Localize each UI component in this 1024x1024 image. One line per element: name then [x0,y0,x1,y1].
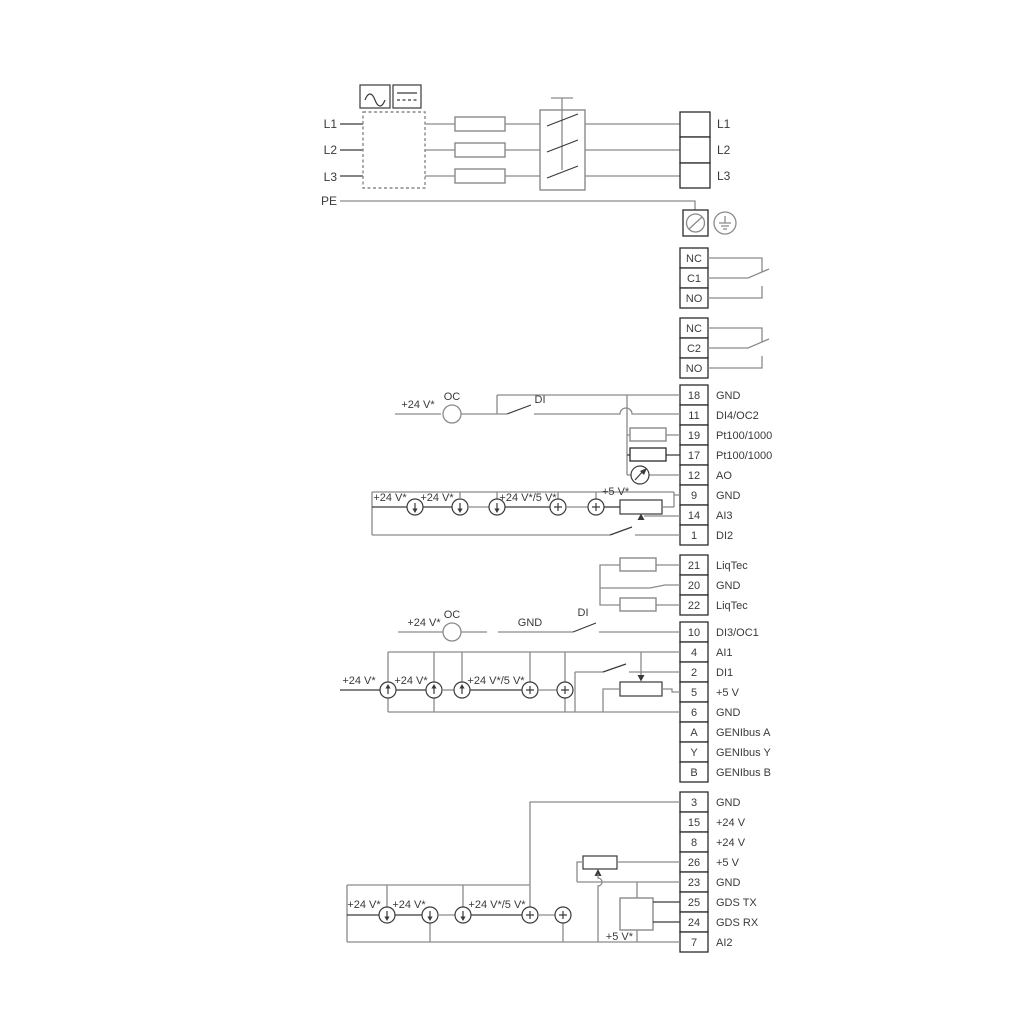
io-group2-wiring: +24 V* OC GND DI +24 V* +24 V* +24 V*/5 … [340,607,680,712]
pe-terminal-icon [683,210,708,236]
t18-num: 18 [688,390,700,402]
t26-num: 26 [688,857,700,869]
t8-num: 8 [691,837,697,849]
g2-plus24-b: +24 V* [394,675,428,687]
io-group1-terminals: 18GND 11DI4/OC2 19Pt100/1000 17Pt100/100… [680,385,772,545]
t8-label: +24 V [716,837,746,849]
tA-label: GENIbus A [716,727,771,739]
t3-label: GND [716,797,741,809]
rcd-box [363,112,425,188]
liqtec-sensor2-icon [620,598,656,611]
voltage-source-plus-icon [588,499,604,515]
t23-label: GND [716,877,741,889]
t3-num: 3 [691,797,697,809]
potentiometer-icon [620,500,680,520]
voltage-source-plus-icon [557,682,573,698]
tY-label: GENIbus Y [716,747,771,759]
io-group3-wiring: +24 V* +24 V* +24 V*/5 V* [347,802,680,943]
t10-label: DI3/OC1 [716,627,759,639]
t22-label: LiqTec [716,600,748,612]
g1-plus5: +5 V* [602,486,630,498]
t14-num: 14 [688,510,700,522]
t19-label: Pt100/1000 [716,430,772,442]
current-source-down-icon [422,907,438,923]
tY-num: Y [690,747,698,759]
power-terminal-block [680,112,710,188]
power-input-label-l3: L3 [324,170,338,184]
voltage-source-plus-icon [550,499,566,515]
relay2-contact-icon [708,328,769,368]
t15-num: 15 [688,817,700,829]
relay2-section: NC C2 NO [680,318,769,378]
tA-num: A [690,727,698,739]
t25-num: 25 [688,897,700,909]
t9-label: GND [716,490,741,502]
fuse-icon [455,117,505,183]
g1-plus24-b: +24 V* [420,492,454,504]
voltage-source-plus-icon [522,907,538,923]
t12-num: 12 [688,470,700,482]
g2-gnd-label: GND [518,617,543,629]
g1-plus24-a: +24 V* [373,492,407,504]
t4-label: AI1 [716,647,733,659]
pt100-resistor2-icon [630,448,666,461]
tB-label: GENIbus B [716,767,771,779]
di2-switch-icon [610,527,632,535]
g1-oc-label: OC [444,391,461,403]
t11-num: 11 [688,410,699,422]
t5-label: +5 V [716,687,740,699]
relay1-no: NO [686,293,703,305]
g1-plus24-oc-label: +24 V* [401,399,435,411]
io-group1-wiring: +24 V* OC DI +24 V* +24 V* [372,391,680,535]
g3-plus24-a: +24 V* [347,899,381,911]
relay1-section: NC C1 NO [680,248,769,308]
di3-switch-icon [573,623,596,632]
di1-switch-icon [603,664,626,672]
relay2-nc: NC [686,323,702,335]
ac-wave-symbol-icon [360,85,390,108]
t21-label: LiqTec [716,560,748,572]
g3-plus24or5: +24 V*/5 V* [468,899,526,911]
open-collector-icon [443,623,461,641]
t25-label: GDS TX [716,897,757,909]
g3-plus24-b: +24 V* [392,899,426,911]
g2-plus24-a: +24 V* [342,675,376,687]
liqtec-terminals: 21LiqTec 20GND 22LiqTec [680,555,748,615]
voltage-source-plus-icon [522,682,538,698]
power-output-label-l2: L2 [717,143,731,157]
t6-label: GND [716,707,741,719]
current-source-down-icon [452,499,468,515]
t24-label: GDS RX [716,917,759,929]
t17-label: Pt100/1000 [716,450,772,462]
io-group2-terminals: 10DI3/OC1 4AI1 2DI1 5+5 V 6GND AGENIbus … [680,622,771,782]
t5-num: 5 [691,687,697,699]
relay1-c1: C1 [687,273,701,285]
t23-num: 23 [688,877,700,889]
main-switch-icon [540,98,585,190]
t2-num: 2 [691,667,697,679]
di4-switch-icon [507,405,531,414]
g2-plus24or5: +24 V*/5 V* [467,675,525,687]
voltage-source-plus-icon [555,907,571,923]
relay2-c2: C2 [687,343,701,355]
power-input-label-l2: L2 [324,143,338,157]
t4-num: 4 [691,647,697,659]
t1-num: 1 [691,530,697,542]
relay1-contact-icon [708,258,769,298]
t17-num: 17 [688,450,700,462]
t9-num: 9 [691,490,697,502]
g1-plus24or5: +24 V*/5 V* [499,492,557,504]
wiring-diagram: L1 L2 L3 PE [0,0,1024,1024]
t11-label: DI4/OC2 [716,410,759,422]
io-group3-terminals: 3GND 15+24 V 8+24 V 26+5 V 23GND 25GDS T… [680,792,759,952]
relay1-nc: NC [686,253,702,265]
relay2-no: NO [686,363,703,375]
t1-label: DI2 [716,530,733,542]
earth-ground-icon [714,212,736,234]
t20-num: 20 [688,580,700,592]
t24-num: 24 [688,917,700,929]
t12-label: AO [716,470,732,482]
t10-num: 10 [688,627,700,639]
liqtec-sensor1-icon [620,558,656,571]
power-section: L1 L2 L3 PE [321,85,736,236]
potentiometer-icon [603,652,680,712]
t7-num: 7 [691,937,697,949]
t21-num: 21 [688,560,700,572]
g1-di-label: DI [535,394,546,406]
g2-oc-label: OC [444,609,461,621]
t22-num: 22 [688,600,700,612]
power-input-label-l1: L1 [324,117,338,131]
t7-label: AI2 [716,937,733,949]
t14-label: AI3 [716,510,733,522]
tB-num: B [690,767,697,779]
g3-plus5: +5 V* [606,931,634,943]
dc-pulse-symbol-icon [393,85,421,108]
t15-label: +24 V [716,817,746,829]
power-input-label-pe: PE [321,194,337,208]
t20-label: GND [716,580,741,592]
t19-num: 19 [688,430,700,442]
liqtec-wiring [600,558,680,611]
t2-label: DI1 [716,667,733,679]
current-source-up-icon [426,682,442,698]
g2-plus24-oc-label: +24 V* [407,617,441,629]
t6-num: 6 [691,707,697,719]
g2-di-label: DI [578,607,589,619]
power-output-label-l3: L3 [717,169,731,183]
t18-label: GND [716,390,741,402]
pt100-resistor1-icon [630,428,666,441]
power-output-label-l1: L1 [717,117,731,131]
t26-label: +5 V [716,857,740,869]
open-collector-icon [443,405,461,423]
analog-output-meter-icon [627,466,680,484]
